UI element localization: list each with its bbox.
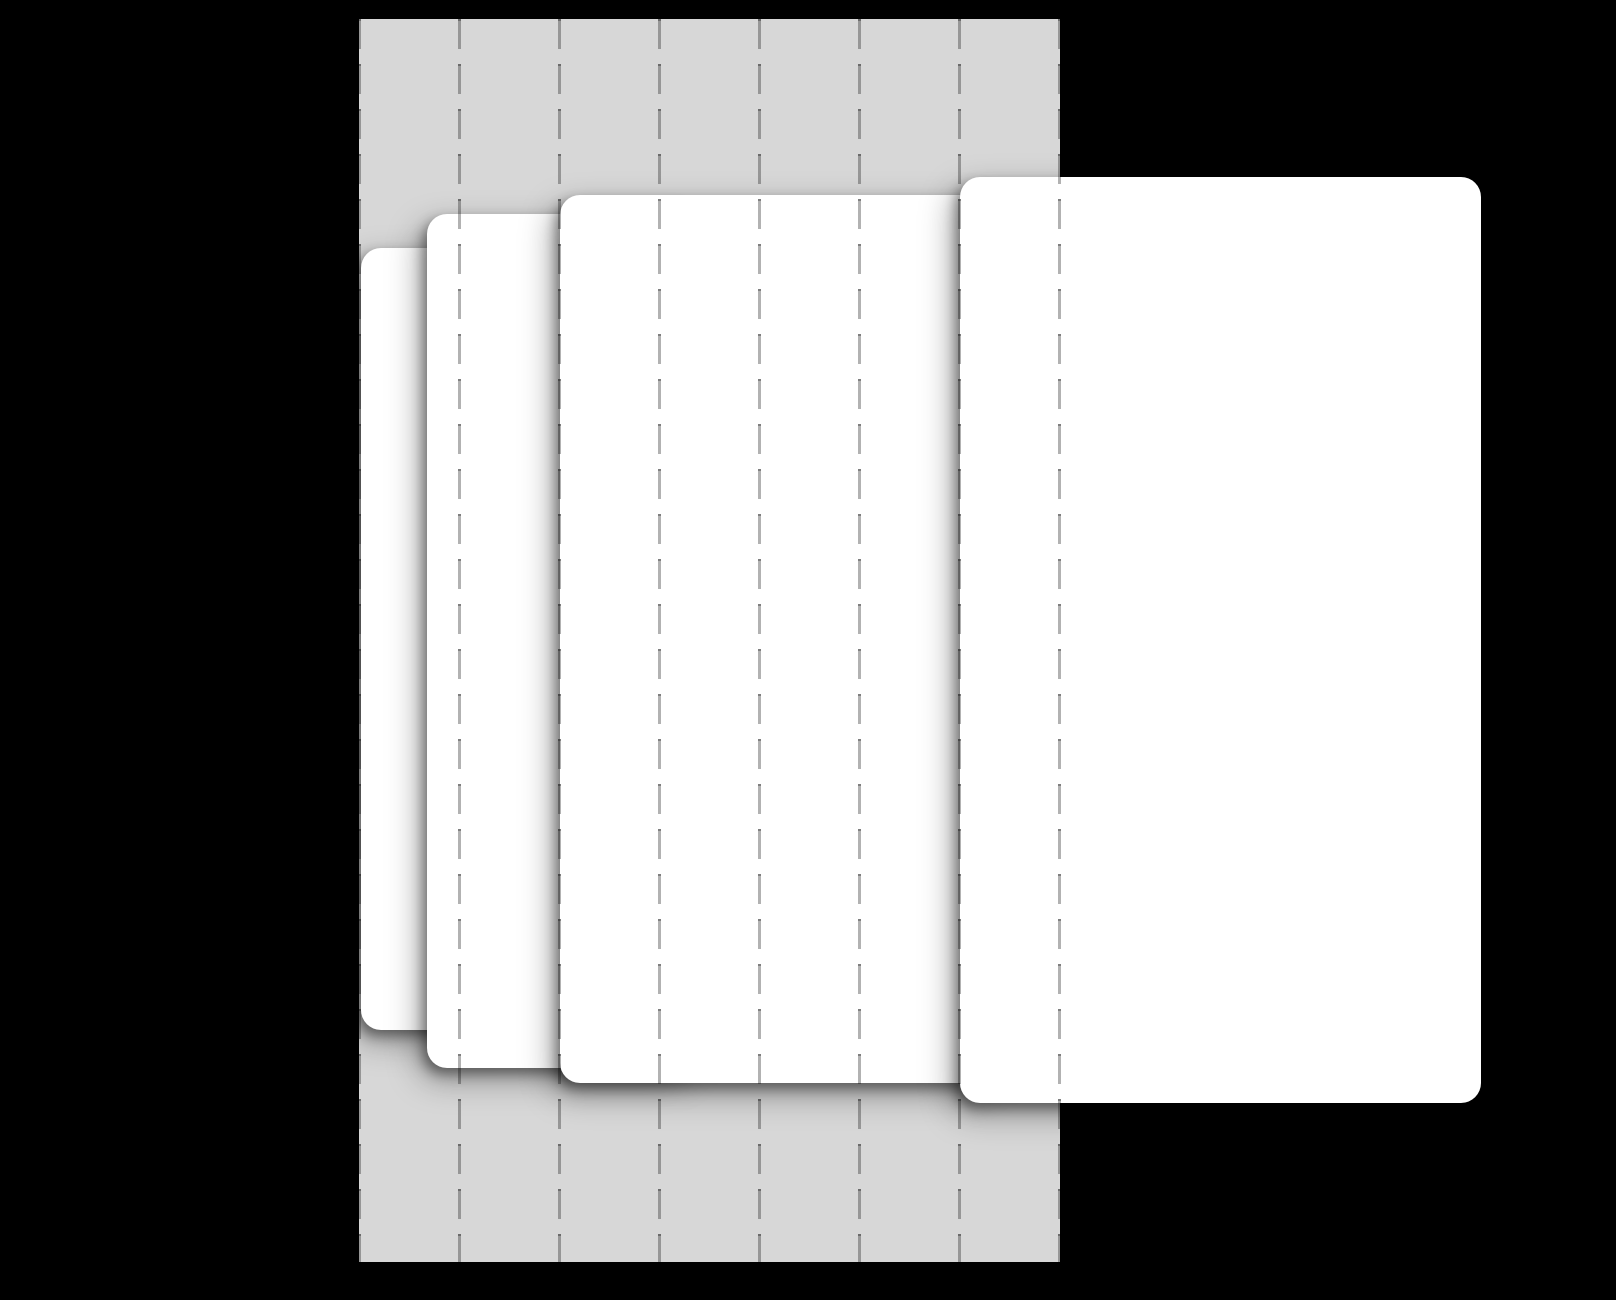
grid-band — [359, 19, 1060, 1262]
figure-canvas — [0, 0, 1616, 1300]
